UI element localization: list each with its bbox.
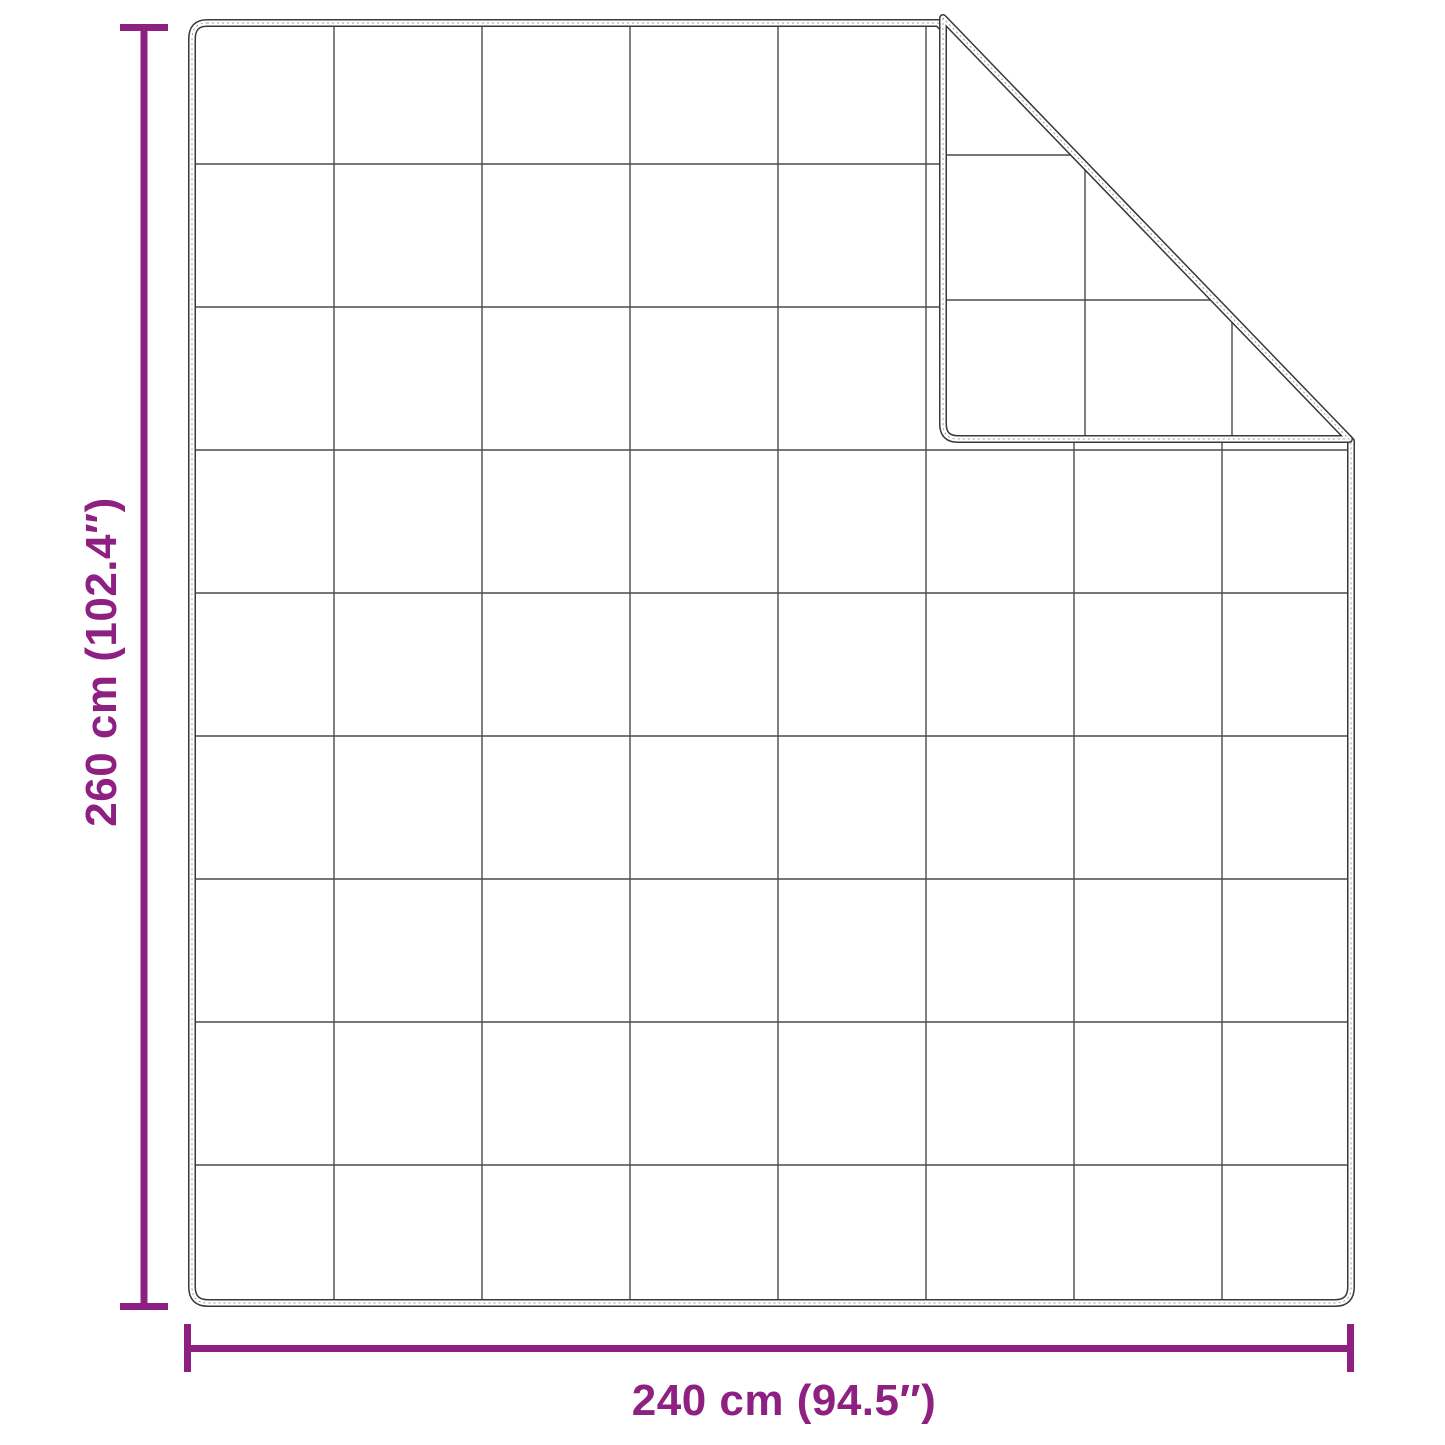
height-dimension: 260 cm (102.4″) xyxy=(77,24,168,1310)
height-dimension-cap-bottom xyxy=(120,1303,168,1310)
fold-flap xyxy=(938,18,1349,445)
width-dimension-tick-right xyxy=(1347,1324,1354,1372)
height-label: 260 cm (102.4″) xyxy=(77,497,126,826)
width-label: 240 cm (94.5″) xyxy=(632,1376,936,1425)
height-dimension-line xyxy=(141,26,148,1308)
width-dimension: 240 cm (94.5″) xyxy=(184,1324,1354,1425)
width-dimension-line xyxy=(187,1345,1351,1352)
width-dimension-tick-left xyxy=(184,1324,191,1372)
blanket-body xyxy=(188,18,1355,1308)
dimension-diagram: 260 cm (102.4″) 240 cm (94.5″) xyxy=(0,0,1445,1445)
blanket-illustration: 260 cm (102.4″) 240 cm (94.5″) xyxy=(0,0,1445,1445)
height-dimension-cap-top xyxy=(120,24,168,31)
